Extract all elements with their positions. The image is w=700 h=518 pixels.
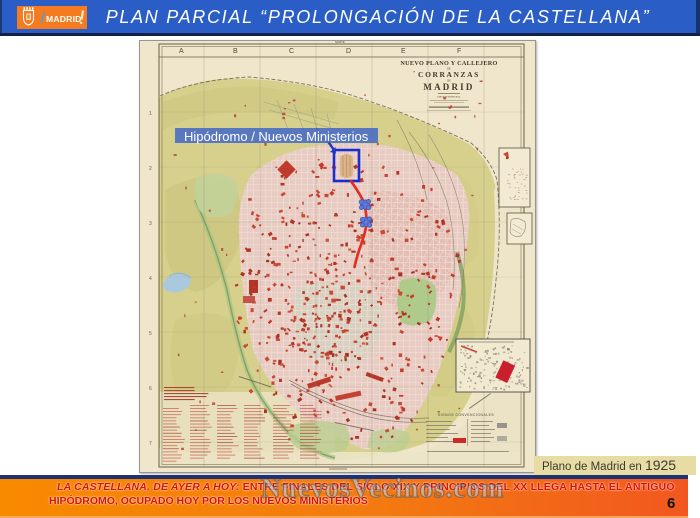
svg-text:6: 6 [149,386,152,392]
svg-text:C: C [289,48,294,55]
svg-text:NUEVO PLANO Y CALLEJERO: NUEVO PLANO Y CALLEJERO [400,60,497,67]
svg-text:CORRANZAS: CORRANZAS [418,70,480,79]
svg-text:NORTE: NORTE [335,40,345,44]
svg-text:2: 2 [149,166,152,172]
svg-text:MADRID: MADRID [46,14,82,24]
svg-text:MADRID: MADRID [423,82,474,92]
svg-text:B: B [233,48,238,55]
svg-text:SIGNOS CONVENCIONALES: SIGNOS CONVENCIONALES [438,413,495,417]
svg-text:D: D [346,48,351,55]
svg-text:1: 1 [149,111,152,117]
svg-text:4: 4 [149,276,152,282]
svg-text:7: 7 [149,441,152,447]
svg-text:E: E [401,48,406,55]
svg-text:3: 3 [149,221,152,227]
svg-text:F: F [457,48,461,55]
svg-text:A: A [179,48,184,55]
svg-text:EDICION MUNICIPAL: EDICION MUNICIPAL [437,96,461,99]
svg-text:5: 5 [149,331,152,337]
